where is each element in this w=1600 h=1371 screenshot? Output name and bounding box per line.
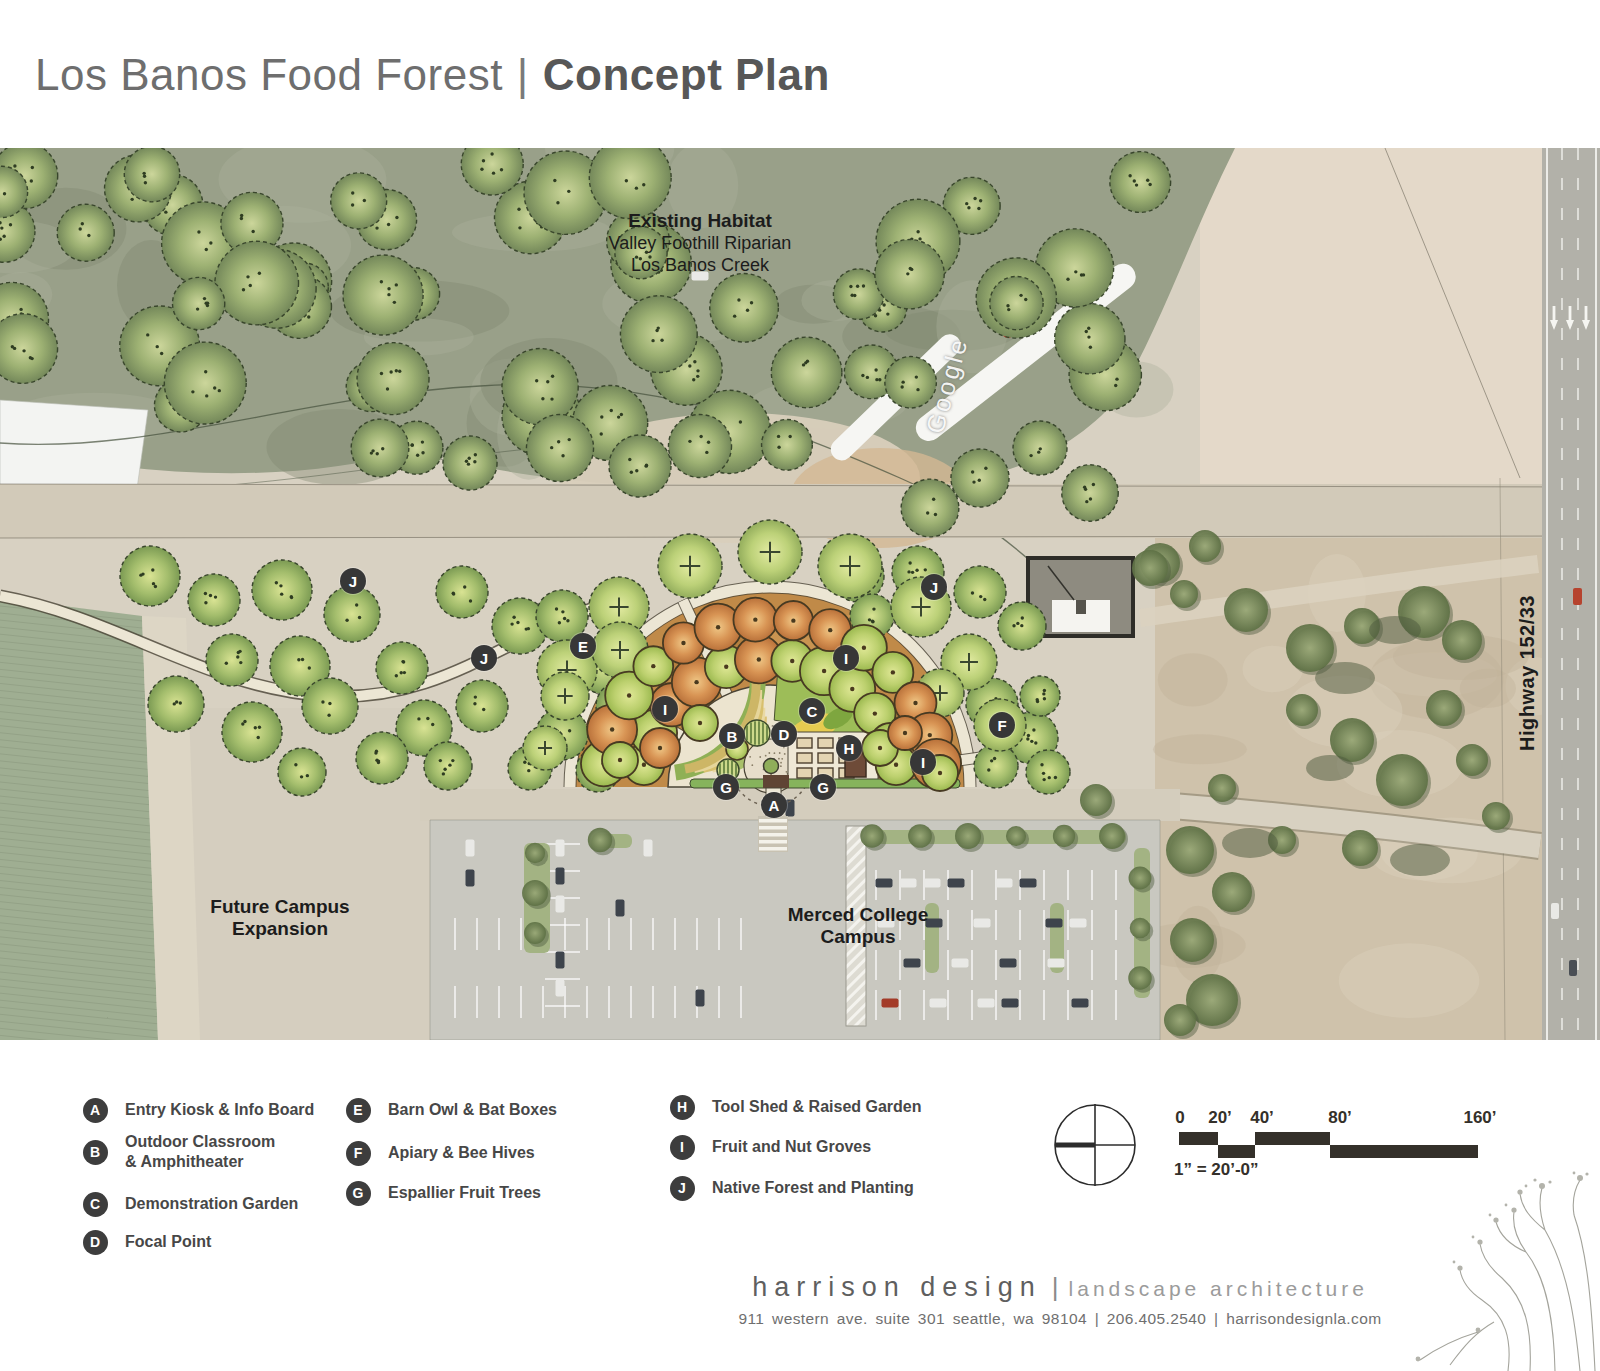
scale-tick-3: 80’ <box>1318 1108 1362 1128</box>
legend-label-G: Espallier Fruit Trees <box>388 1183 541 1203</box>
plan-marker-B: B <box>719 723 745 749</box>
plan-marker-G: G <box>713 774 739 800</box>
legend-label-A: Entry Kiosk & Info Board <box>125 1100 314 1120</box>
legend-label-I: Fruit and Nut Groves <box>712 1137 871 1157</box>
legend-label-C: Demonstration Garden <box>125 1194 298 1214</box>
legend-badge-F: F <box>346 1141 371 1166</box>
plan-marker-D: D <box>771 721 797 747</box>
plan-marker-J: J <box>921 574 947 600</box>
scale-bar-segment-0 <box>1179 1132 1218 1145</box>
north-compass-icon <box>1053 1103 1139 1189</box>
legend-label-B: Outdoor Classroom& Amphitheater <box>125 1132 275 1172</box>
legend-badge-E: E <box>346 1098 371 1123</box>
legend-label-F: Apiary & Bee Hives <box>388 1143 535 1163</box>
site-plan-map: Existing Habitat Valley Foothill Riparia… <box>0 148 1600 1040</box>
scale-tick-1: 20’ <box>1198 1108 1242 1128</box>
plan-marker-A: A <box>761 792 787 818</box>
legend-label-D: Focal Point <box>125 1232 211 1252</box>
plan-marker-E: E <box>570 633 596 659</box>
legend-badge-A: A <box>83 1098 108 1123</box>
firm-tagline: landscape architecture <box>1069 1277 1368 1300</box>
plan-marker-G: G <box>810 774 836 800</box>
legend-badge-I: I <box>670 1135 695 1160</box>
plan-marker-J: J <box>340 568 366 594</box>
botanical-sketch <box>1330 1160 1600 1371</box>
document-name: Concept Plan <box>543 50 830 99</box>
plan-marker-I: I <box>652 696 678 722</box>
plan-marker-H: H <box>836 735 862 761</box>
legend-label-J: Native Forest and Planting <box>712 1178 914 1198</box>
plan-marker-C: C <box>799 698 825 724</box>
title-separator: | <box>503 50 543 99</box>
page-title: Los Banos Food Forest|Concept Plan <box>35 50 830 100</box>
aerial-plan-graphic <box>0 148 1600 1040</box>
legend-badge-G: G <box>346 1181 371 1206</box>
plan-marker-F: F <box>989 712 1015 738</box>
firm-name: harrison design <box>752 1272 1042 1302</box>
scale-bar-segment-1 <box>1255 1132 1330 1145</box>
legend-badge-D: D <box>83 1230 108 1255</box>
scale-bar-segment-2 <box>1218 1145 1255 1158</box>
scale-bar-segment-3 <box>1330 1145 1478 1158</box>
concept-plan-sheet: Los Banos Food Forest|Concept Plan <box>0 0 1600 1371</box>
plan-marker-I: I <box>833 645 859 671</box>
scale-tick-0: 0 <box>1158 1108 1202 1128</box>
legend-badge-C: C <box>83 1192 108 1217</box>
legend-label-H: Tool Shed & Raised Garden <box>712 1097 922 1117</box>
legend-badge-H: H <box>670 1095 695 1120</box>
firm-separator: | <box>1042 1272 1069 1302</box>
legend-label-E: Barn Owl & Bat Boxes <box>388 1100 557 1120</box>
scale-tick-2: 40’ <box>1240 1108 1284 1128</box>
legend-badge-B: B <box>83 1140 108 1165</box>
legend-badge-J: J <box>670 1176 695 1201</box>
plan-marker-J: J <box>471 645 497 671</box>
project-name: Los Banos Food Forest <box>35 50 503 99</box>
scale-note: 1” = 20’-0” <box>1174 1160 1259 1180</box>
plan-marker-I: I <box>910 749 936 775</box>
scale-tick-4: 160’ <box>1458 1108 1502 1128</box>
